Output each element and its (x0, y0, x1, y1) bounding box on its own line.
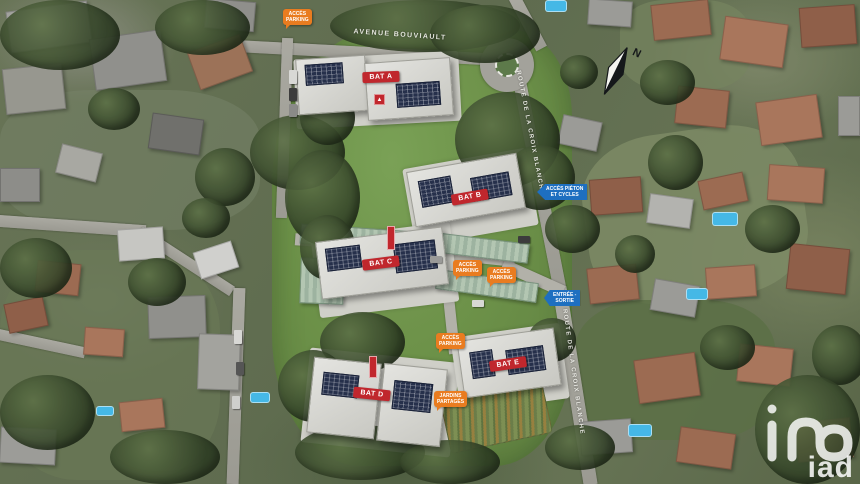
tree (155, 0, 250, 55)
house-roof (2, 63, 66, 115)
access-tag-line: PARKING (439, 341, 462, 347)
access-tag-parking-north: ACCÈS PARKING (283, 9, 312, 25)
house-roof (705, 264, 757, 299)
access-tag-parking-central-2: ACCÈS PARKING (487, 267, 516, 283)
access-tag-parking-central-1: ACCÈS PARKING (453, 260, 482, 276)
solar-panels (396, 81, 441, 108)
tree (545, 205, 600, 253)
parked-car (232, 396, 240, 409)
building-bat-a-west-wing (295, 55, 369, 116)
pedestrian-access-arrow: ACCÈS PIÉTON ET CYCLES (537, 184, 587, 200)
house-roof (587, 0, 633, 28)
north-compass: N (594, 38, 642, 109)
house-roof (117, 226, 165, 261)
tree (0, 0, 120, 70)
parked-car (289, 88, 297, 101)
house-roof (646, 193, 694, 229)
house-roof (119, 398, 166, 432)
house-roof (0, 168, 40, 202)
house-roof (838, 96, 860, 136)
house-roof (719, 16, 789, 68)
parked-car (236, 362, 244, 375)
building-bat-a-east-wing (364, 57, 454, 121)
red-banner-marker (369, 356, 377, 378)
solar-panels (417, 175, 454, 207)
house-roof (589, 176, 643, 216)
compass-north-label: N (630, 46, 642, 60)
access-tag-line: PARTAGÉS (437, 399, 464, 405)
shared-gardens-tag: JARDINS PARTAGÉS (434, 391, 467, 407)
parked-car (234, 330, 242, 344)
house-roof (676, 426, 736, 469)
solar-panels (392, 380, 433, 413)
warning-triangle-icon: ▲ (377, 97, 383, 103)
iad-logo-icon (758, 395, 854, 463)
tree (88, 88, 140, 130)
house-roof (799, 4, 858, 48)
red-banner-marker (387, 226, 395, 250)
house-roof (755, 94, 823, 146)
direction-line: SORTIE (553, 298, 576, 304)
access-tag-line: PARKING (286, 17, 309, 23)
house-roof (148, 113, 205, 156)
access-tag-parking-south: ACCÈS PARKING (436, 333, 465, 349)
iad-watermark: iad (754, 395, 854, 480)
aerial-site-plan: ▲ BAT A BAT B BAT C BAT D BAT E ACCÈS PA… (0, 0, 860, 484)
tree (0, 238, 72, 298)
building-tag-bat-a: BAT A (362, 71, 399, 83)
direction-line: ET CYCLES (546, 192, 583, 198)
tree (648, 135, 703, 190)
swimming-pool (628, 424, 652, 437)
tree (182, 198, 230, 238)
swimming-pool (250, 392, 270, 403)
tree (700, 325, 755, 370)
parked-car (289, 104, 297, 117)
tree (0, 375, 95, 450)
parked-car (472, 300, 484, 307)
tree (400, 440, 500, 484)
house-roof (786, 243, 850, 295)
solar-panels (305, 63, 344, 86)
parked-car (289, 70, 297, 84)
tree (745, 205, 800, 253)
swimming-pool (686, 288, 708, 300)
tree (615, 235, 655, 273)
tree (110, 430, 220, 484)
tree (128, 258, 186, 306)
house-roof (83, 327, 125, 358)
access-tag-line: PARKING (456, 268, 479, 274)
tree (640, 60, 695, 105)
parked-car (518, 236, 530, 243)
parked-car (430, 256, 442, 263)
swimming-pool (545, 0, 567, 12)
access-tag-line: PARKING (490, 275, 513, 281)
house-roof (633, 352, 701, 404)
house-roof (767, 164, 825, 204)
solar-panels (324, 244, 362, 272)
entrance-exit-arrow: ENTRÉE - SORTIE (544, 290, 580, 306)
swimming-pool (712, 212, 738, 226)
warning-marker: ▲ (374, 94, 385, 105)
house-roof (650, 0, 711, 41)
swimming-pool (96, 406, 114, 416)
